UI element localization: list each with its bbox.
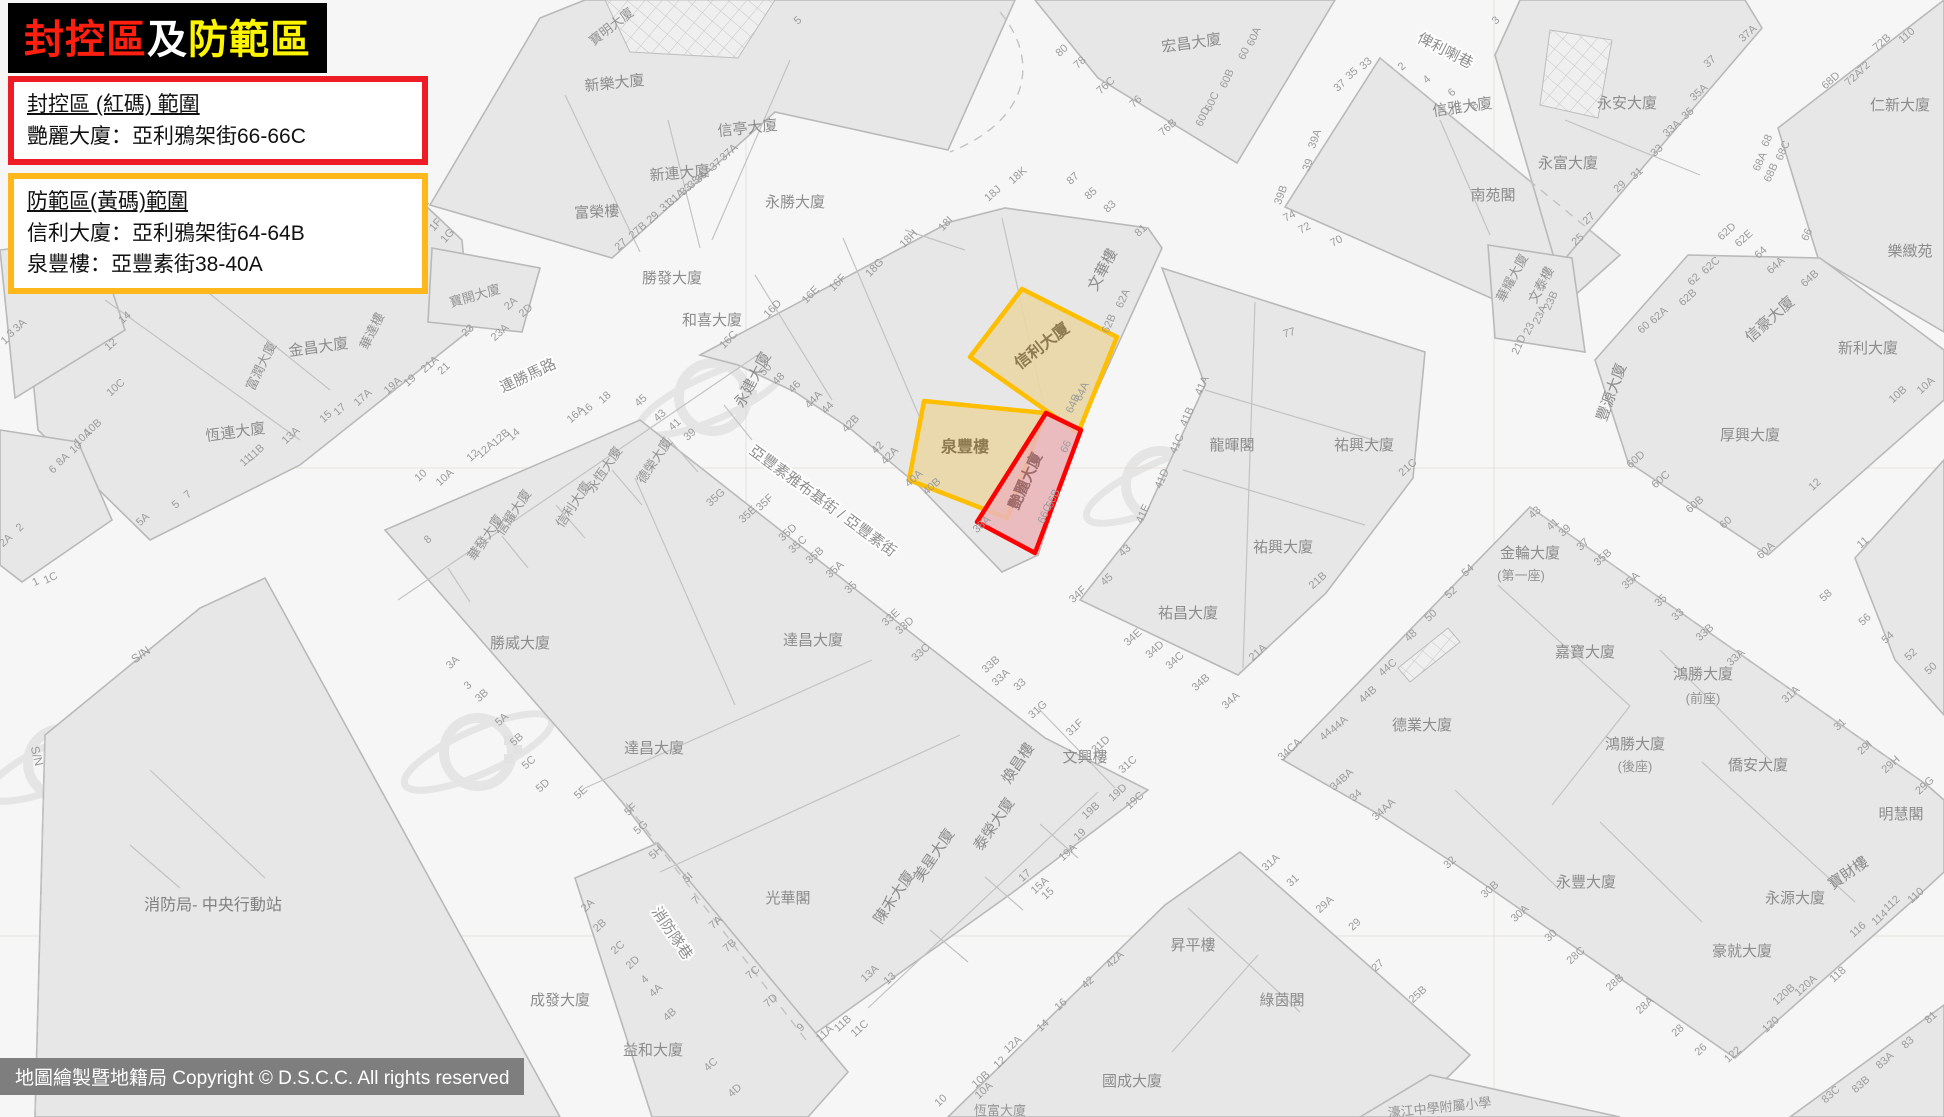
map-label: 益和大廈 [623, 1041, 683, 1059]
map-label: 祐昌大廈 [1158, 604, 1218, 622]
map-label: 豪就大廈 [1712, 942, 1772, 960]
map-label: 達昌大廈 [783, 631, 843, 649]
map-label: 永源大廈 [1765, 889, 1825, 907]
map-stage: 寶明大廈新樂大廈信亭大廈新連大廈富榮樓永勝大廈勝發大廈和喜大廈永建大廈文華樓宏昌… [0, 0, 1944, 1117]
map-label: 鴻勝大廈 [1605, 735, 1665, 753]
legend-banner: 封控區及防範區 [8, 3, 327, 73]
map-label: 成發大廈 [530, 991, 590, 1009]
banner-segment: 及 [147, 18, 188, 62]
map-label: 樂緻苑 [1887, 243, 1932, 260]
map-label: 永豐大廈 [1556, 873, 1616, 891]
map-label: 勝威大廈 [490, 634, 550, 652]
map-label: 鴻勝大廈 [1673, 665, 1733, 683]
banner-segment: 防範區 [188, 18, 311, 62]
map-label: 嘉寶大廈 [1555, 643, 1615, 661]
map-label: 金輪大廈 [1500, 544, 1560, 562]
yellow-zone-legend: 防範區(黃碼)範圍 信利大廈：亞利鴉架街64-64B 泉豐樓：亞豐素街38-40… [8, 173, 428, 294]
yellow-zone-legend-line: 信利大廈：亞利鴉架街64-64B [27, 218, 409, 250]
map-label: 祐興大廈 [1253, 538, 1313, 556]
map-label: 祐興大廈 [1334, 436, 1394, 454]
map-label: 和喜大廈 [682, 311, 742, 329]
map-label: (後座) [1618, 759, 1653, 774]
yellow-zone-legend-line: 泉豐樓：亞豐素街38-40A [27, 249, 409, 281]
red-zone-legend: 封控區 (紅碼) 範圍 艷麗大廈：亞利鴉架街66-66C [8, 76, 428, 165]
map-label: 新利大廈 [1838, 339, 1898, 357]
map-label: 恆富大廈 [974, 1103, 1026, 1117]
map-label: 勝發大廈 [642, 269, 702, 287]
map-label: 德業大廈 [1392, 716, 1452, 734]
map-label: 國成大廈 [1102, 1072, 1162, 1090]
copyright-text: 地圖繪製暨地籍局 Copyright © D.S.C.C. All rights… [15, 1068, 509, 1089]
map-label: 昇平樓 [1170, 937, 1215, 954]
map-label: (第一座) [1497, 568, 1545, 583]
copyright-bar: 地圖繪製暨地籍局 Copyright © D.S.C.C. All rights… [0, 1058, 524, 1095]
map-label: 富榮樓 [574, 202, 620, 222]
map-label: 泉豐樓 [941, 437, 989, 456]
map-label: 綠茵閣 [1259, 992, 1304, 1009]
map-label: 光華閣 [765, 890, 810, 907]
map-label: 僑安大廈 [1728, 756, 1788, 774]
map-label: 南苑閣 [1470, 187, 1515, 204]
map-label: 龍暉閣 [1209, 437, 1254, 454]
map-label: 永勝大廈 [765, 193, 825, 211]
base-map: 寶明大廈新樂大廈信亭大廈新連大廈富榮樓永勝大廈勝發大廈和喜大廈永建大廈文華樓宏昌… [0, 0, 1944, 1117]
red-zone-legend-title: 封控區 (紅碼) 範圍 [27, 89, 409, 121]
map-label: 永富大廈 [1538, 154, 1598, 172]
map-label: (前座) [1686, 691, 1721, 706]
banner-segment: 封控區 [24, 18, 147, 62]
map-label: 仁新大廈 [1870, 96, 1930, 114]
red-zone-legend-line: 艷麗大廈：亞利鴉架街66-66C [27, 121, 409, 153]
yellow-zone-legend-title: 防範區(黃碼)範圍 [27, 186, 409, 218]
map-label: 明慧閣 [1878, 806, 1923, 823]
map-label: 永安大廈 [1597, 94, 1657, 112]
map-label: 達昌大廈 [624, 739, 684, 757]
map-label: 消防局- 中央行動站 [144, 896, 282, 914]
map-label: 厚興大廈 [1720, 426, 1780, 444]
